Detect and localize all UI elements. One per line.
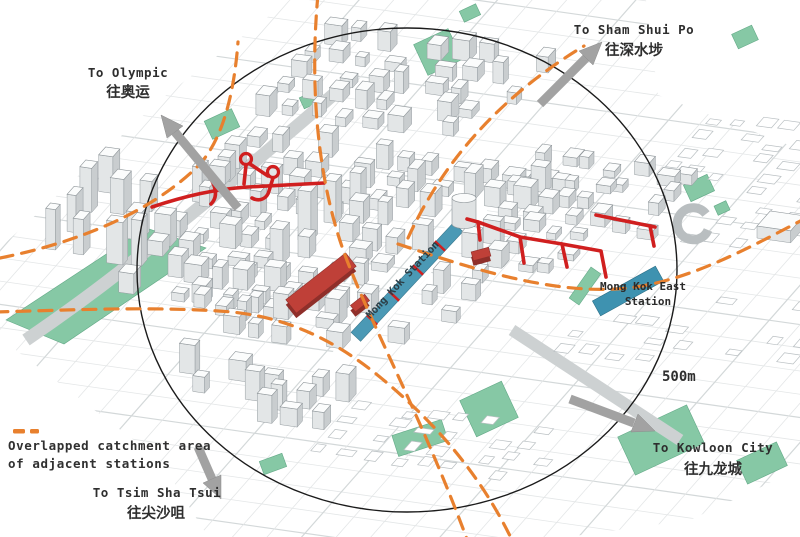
legend-label-line2: of adjacent stations [8, 456, 171, 471]
building-flat [756, 117, 779, 128]
building-flat [678, 148, 698, 158]
building-flat [747, 186, 767, 194]
park [259, 453, 286, 474]
scale-label: 500m [662, 369, 696, 385]
mong-kok-catchment-map: To Olympic 往奥运 To Sham Shui Po 往深水埗 To K… [0, 0, 800, 537]
building-flat [635, 354, 654, 362]
direction-label-kowloon-city-en: To Kowloon City [653, 440, 773, 455]
building-side [194, 294, 205, 309]
building-flat [635, 315, 659, 325]
legend: Overlapped catchment area of adjacent st… [8, 429, 211, 471]
building-side [256, 94, 270, 117]
building-flat [741, 134, 764, 143]
building-side [250, 190, 261, 218]
building-flat [762, 145, 782, 152]
map-canvas: To Olympic 往奥运 To Sham Shui Po 往深水埗 To K… [0, 0, 800, 537]
building-side [123, 217, 128, 265]
building-flat [389, 418, 412, 428]
building-side [493, 61, 504, 84]
building-flat [767, 336, 783, 345]
building-side [356, 56, 366, 67]
building-side [577, 197, 588, 210]
building-flat [730, 120, 745, 127]
building-side [193, 376, 205, 394]
building-side [229, 359, 246, 382]
building-flat [489, 440, 512, 450]
park [732, 25, 759, 49]
building-side [394, 71, 403, 94]
building-flat [757, 174, 781, 184]
building-flat [792, 302, 800, 311]
building-side [257, 393, 272, 423]
building-flat [534, 427, 554, 435]
building-flat [673, 340, 693, 350]
building-side [92, 162, 98, 213]
building-side [339, 222, 353, 242]
building-side [452, 39, 469, 62]
mong-kok-east-station-label-line1: Mong Kok East [600, 280, 686, 293]
building-flat [391, 458, 408, 467]
building-side [377, 99, 387, 110]
building-flat [708, 173, 723, 181]
building-side [220, 223, 236, 249]
building-flat [778, 120, 800, 130]
building-side [336, 175, 342, 224]
legend-dash-icon [30, 429, 39, 434]
building-side [420, 191, 435, 217]
building-side [282, 105, 293, 116]
building-flat [336, 449, 357, 457]
building-flat [716, 216, 737, 225]
route-loop-link2 [244, 165, 246, 184]
direction-label-kowloon-city-zh: 往九龙城 [684, 460, 742, 478]
building-side [378, 30, 391, 51]
direction-label-tsim-sha-tsui-en: To Tsim Sha Tsui [93, 485, 221, 500]
building-flat [453, 413, 469, 421]
building-flat [644, 338, 665, 345]
building-side [327, 330, 343, 349]
building-flat [479, 456, 495, 465]
building-side [648, 202, 658, 216]
building-side [580, 156, 589, 169]
building-side [443, 121, 454, 136]
building-flat [605, 353, 624, 361]
street-line [0, 514, 800, 537]
cylinder-building-roof [452, 194, 476, 203]
building-side [376, 144, 389, 170]
building-flat [730, 238, 748, 248]
legend-dash-icon [13, 429, 25, 434]
building-flat [793, 339, 800, 348]
building-flat [789, 140, 800, 150]
building-side [388, 326, 405, 344]
building-side [422, 290, 432, 305]
direction-label-tsim-sha-tsui-zh: 往尖沙咀 [127, 504, 185, 522]
building-side [298, 236, 310, 258]
park [714, 201, 730, 216]
building-side [168, 254, 182, 278]
building-side [484, 186, 500, 208]
building-side [247, 135, 260, 147]
building-side [277, 196, 288, 211]
building-flat [777, 161, 800, 171]
building-side [119, 272, 134, 295]
building-side [180, 343, 196, 374]
building-side [272, 325, 287, 344]
building-side [396, 187, 408, 208]
building-flat [703, 148, 724, 157]
building-side [378, 201, 388, 225]
building-side [336, 373, 349, 403]
building-flat [328, 429, 347, 439]
building-flat [440, 461, 457, 468]
building-side [224, 315, 240, 335]
building-side [351, 27, 361, 42]
building-side [273, 293, 288, 320]
building-side [386, 236, 398, 254]
direction-label-sham-shui-po-zh: 往深水埗 [605, 41, 663, 59]
building-side [280, 407, 297, 427]
building-side [635, 162, 650, 177]
direction-label-olympic-zh: 往奥运 [106, 83, 150, 101]
park [459, 4, 480, 22]
building-flat [579, 344, 600, 355]
building-side [213, 266, 223, 289]
building-flat [517, 441, 535, 450]
building-flat [352, 401, 372, 410]
building-flat [692, 129, 713, 139]
building-side [312, 411, 324, 430]
building-side [291, 60, 307, 79]
building-flat [568, 330, 583, 337]
building-side [148, 240, 163, 257]
building-side [241, 234, 252, 248]
building-side [388, 114, 404, 133]
building-side [273, 134, 283, 153]
building-side [613, 221, 626, 234]
building-flat [534, 458, 553, 466]
park [460, 381, 519, 437]
building-flat [502, 452, 520, 461]
building-side [195, 340, 200, 374]
building-side [248, 323, 258, 339]
legend-label-line1: Overlapped catchment area [8, 438, 211, 453]
building-side [233, 268, 247, 290]
building-flat [489, 471, 507, 481]
building-side [107, 220, 123, 265]
building-flat [554, 343, 575, 353]
building-side [356, 89, 368, 109]
building-side [427, 44, 441, 61]
building-side [110, 178, 124, 215]
direction-label-sham-shui-po-en: To Sham Shui Po [574, 22, 694, 37]
direction-label-olympic-en: To Olympic [88, 65, 168, 80]
building-flat [706, 119, 722, 126]
building-side [461, 283, 475, 301]
building-flat [666, 161, 683, 169]
building-side [463, 66, 478, 82]
building-flat [364, 451, 383, 462]
building-side [329, 49, 343, 64]
building-side [330, 88, 344, 102]
building-side [199, 186, 209, 207]
building-side [131, 219, 141, 266]
building-flat [777, 353, 800, 364]
street-line [0, 468, 800, 537]
mong-kok-east-station-label-line2: Station [625, 295, 671, 308]
